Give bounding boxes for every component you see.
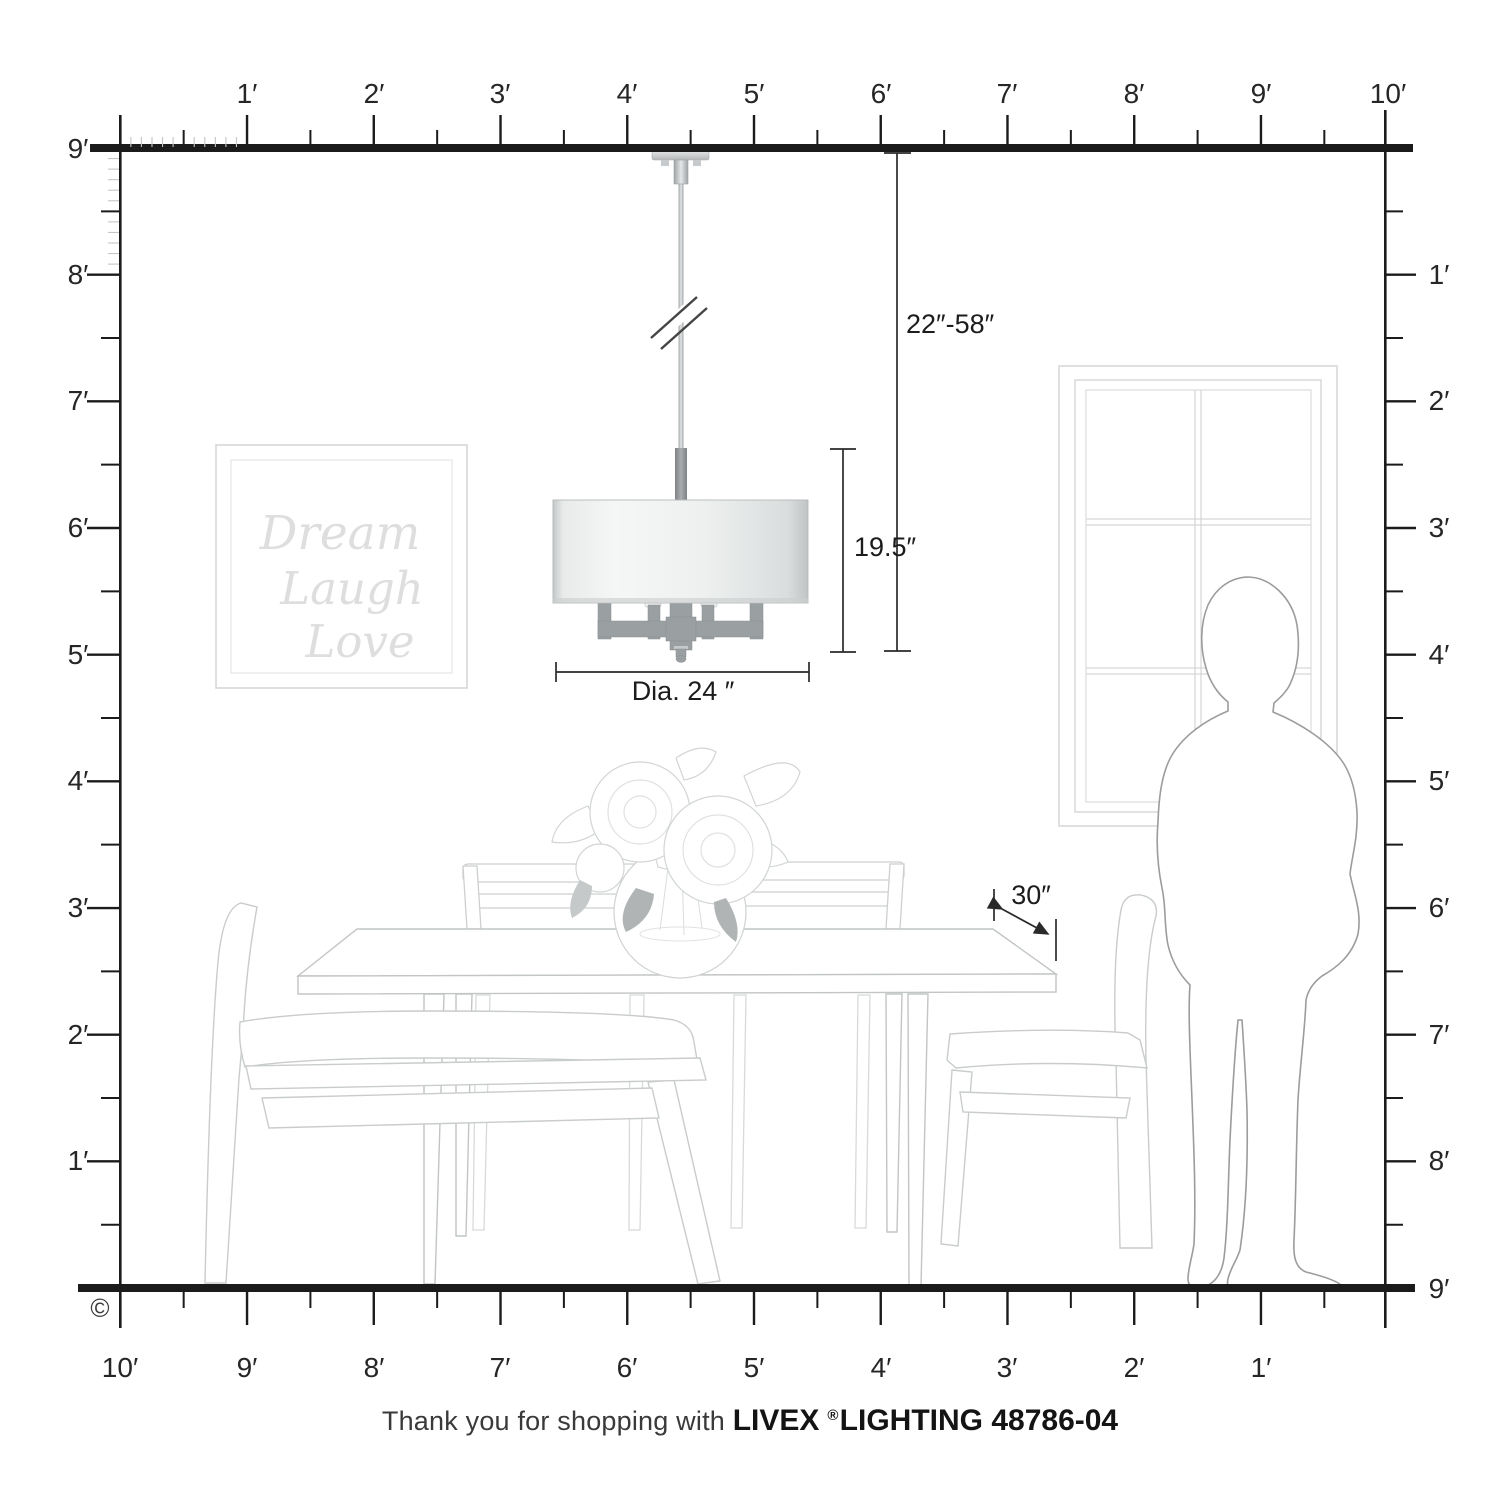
- canopy-stem: [674, 160, 688, 184]
- footer-prefix: Thank you for shopping with: [382, 1406, 725, 1436]
- ruler-bottom-label: 3′: [997, 1352, 1018, 1383]
- wall-art-frame: Dream Laugh Love: [216, 445, 467, 688]
- table-leg: [886, 994, 902, 1232]
- room-scene: Dream Laugh Love: [0, 0, 1500, 1500]
- shade-diameter-label: Dia. 24 ″: [632, 676, 735, 706]
- ruler-bottom-labels: 10′ 9′ 8′ 7′ 6′ 5′ 4′ 3′ 2′ 1′: [102, 1352, 1272, 1383]
- person-silhouette: [1157, 577, 1359, 1291]
- ruler-left-label: 8′: [68, 259, 89, 290]
- table-leg: [908, 994, 928, 1286]
- ruler-bottom-label: 6′: [617, 1352, 638, 1383]
- ruler-right-label: 3′: [1429, 512, 1450, 543]
- shade-stem: [675, 448, 687, 502]
- wall-clearance-label: 30″: [1011, 880, 1051, 910]
- ruler-top-label: 9′: [1251, 78, 1272, 109]
- ruler-bottom-label: 1′: [1251, 1352, 1272, 1383]
- ruler-bottom-label: 8′: [364, 1352, 385, 1383]
- ruler-left-label: 6′: [68, 512, 89, 543]
- ruler-right-label: 1′: [1429, 259, 1450, 290]
- footer-product-number: LIGHTING 48786-04: [840, 1404, 1118, 1437]
- ruler-left-label: 3′: [68, 892, 89, 923]
- dimension-shade-height: [830, 449, 856, 652]
- copyright-symbol: ©: [90, 1293, 109, 1323]
- ruler-top-label: 5′: [744, 78, 765, 109]
- ruler-left-label: 1′: [68, 1145, 89, 1176]
- registered-trademark-symbol: ®: [827, 1407, 838, 1424]
- ruler-right-label: 9′: [1429, 1273, 1450, 1304]
- ruler-right-label: 4′: [1429, 639, 1450, 670]
- floor-line: [78, 1284, 1415, 1292]
- ruler-left-label: 4′: [68, 765, 89, 796]
- ruler-bottom-label: 9′: [237, 1352, 258, 1383]
- ruler-bottom-label: 5′: [744, 1352, 765, 1383]
- ruler-right-label: 7′: [1429, 1019, 1450, 1050]
- rod-break-slash: [651, 297, 697, 338]
- ruler-top-label: 4′: [617, 78, 638, 109]
- ruler-right-labels: 1′ 2′ 3′ 4′ 5′ 6′ 7′ 8′ 9′: [1429, 259, 1450, 1304]
- ruler-right-label: 6′: [1429, 892, 1450, 923]
- canopy-nub: [661, 160, 669, 166]
- ruler-top-label: 8′: [1124, 78, 1145, 109]
- drum-shade-bottom-edge: [553, 598, 808, 603]
- ruler-right-label: 5′: [1429, 765, 1450, 796]
- wall-art-line-1: Dream: [259, 506, 421, 561]
- wall-art-line-2: Laugh: [279, 562, 423, 615]
- ceiling-line: [90, 144, 1413, 152]
- ruler-left-label: 2′: [68, 1019, 89, 1050]
- ruler-right-label: 2′: [1429, 385, 1450, 416]
- ruler-top-label: 10′: [1370, 78, 1406, 109]
- ruler-top-label: 2′: [364, 78, 385, 109]
- ruler-left-label: 9′: [68, 133, 89, 164]
- shade-height-label: 19.5″: [854, 532, 917, 562]
- ruler-top-label: 7′: [997, 78, 1018, 109]
- ruler-bottom-label: 10′: [102, 1352, 138, 1383]
- canopy-nub: [693, 160, 701, 166]
- ruler-top-label: 1′: [237, 78, 258, 109]
- ruler-left-label: 7′: [68, 385, 89, 416]
- left-wall-line: [119, 115, 122, 1328]
- ruler-bottom-label: 7′: [490, 1352, 511, 1383]
- footer-brand: LIVEX: [733, 1404, 820, 1437]
- ruler-bottom-label: 4′: [871, 1352, 892, 1383]
- ruler-left-label: 5′: [68, 639, 89, 670]
- fixture-arms: [598, 603, 763, 662]
- hanging-range-label: 22″-58″: [906, 309, 995, 339]
- ruler-top-label: 6′: [871, 78, 892, 109]
- ruler-bottom-label: 2′: [1124, 1352, 1145, 1383]
- ruler-top-labels: 1′ 2′ 3′ 4′ 5′ 6′ 7′ 8′ 9′ 10′: [237, 78, 1407, 109]
- ruler-left-labels: 9′ 8′ 7′ 6′ 5′ 4′ 3′ 2′ 1′: [68, 133, 89, 1176]
- ruler-top-label: 3′: [490, 78, 511, 109]
- ruler-right-label: 8′: [1429, 1145, 1450, 1176]
- wall-art-line-3: Love: [304, 615, 414, 668]
- pendant-fixture: [553, 150, 808, 662]
- dimension-hanging-range: [884, 153, 911, 651]
- drum-shade: [553, 500, 808, 603]
- dimension-diagram: Dream Laugh Love: [0, 0, 1500, 1500]
- footer-caption: Thank you for shopping with LIVEX®LIGHTI…: [0, 1404, 1500, 1438]
